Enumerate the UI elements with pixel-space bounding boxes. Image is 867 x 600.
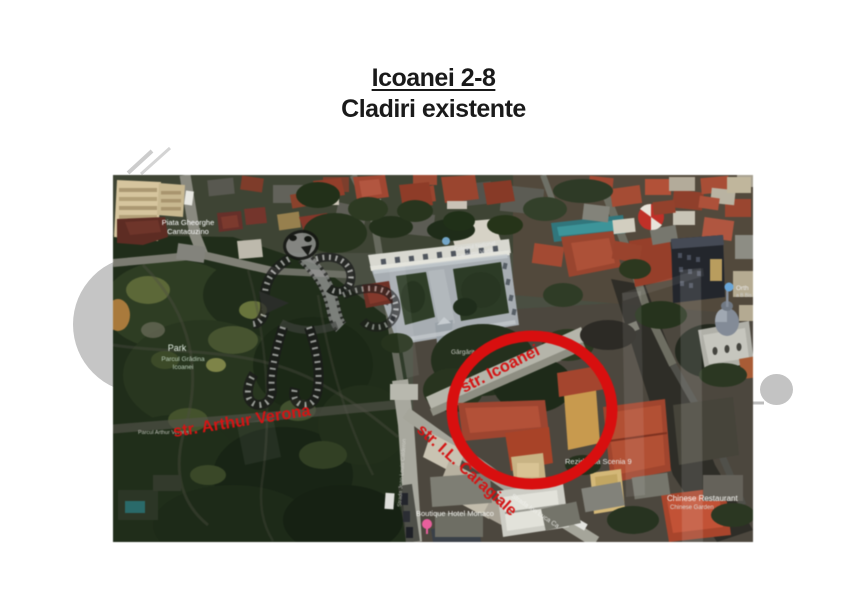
svg-text:Parcul Grădina: Parcul Grădina	[161, 356, 205, 363]
svg-text:Cantacuzino: Cantacuzino	[167, 227, 209, 236]
svg-text:a B Bis: a B Bis	[736, 293, 752, 299]
svg-text:Park: Park	[168, 343, 187, 353]
svg-text:Boutique Hotel Monaco: Boutique Hotel Monaco	[416, 509, 494, 518]
svg-text:Icoanei: Icoanei	[173, 364, 194, 371]
svg-text:Chinese Restaurant: Chinese Restaurant	[667, 494, 738, 503]
svg-text:Orth: Orth	[736, 285, 749, 292]
svg-text:Piata Gheorghe: Piata Gheorghe	[162, 218, 215, 227]
